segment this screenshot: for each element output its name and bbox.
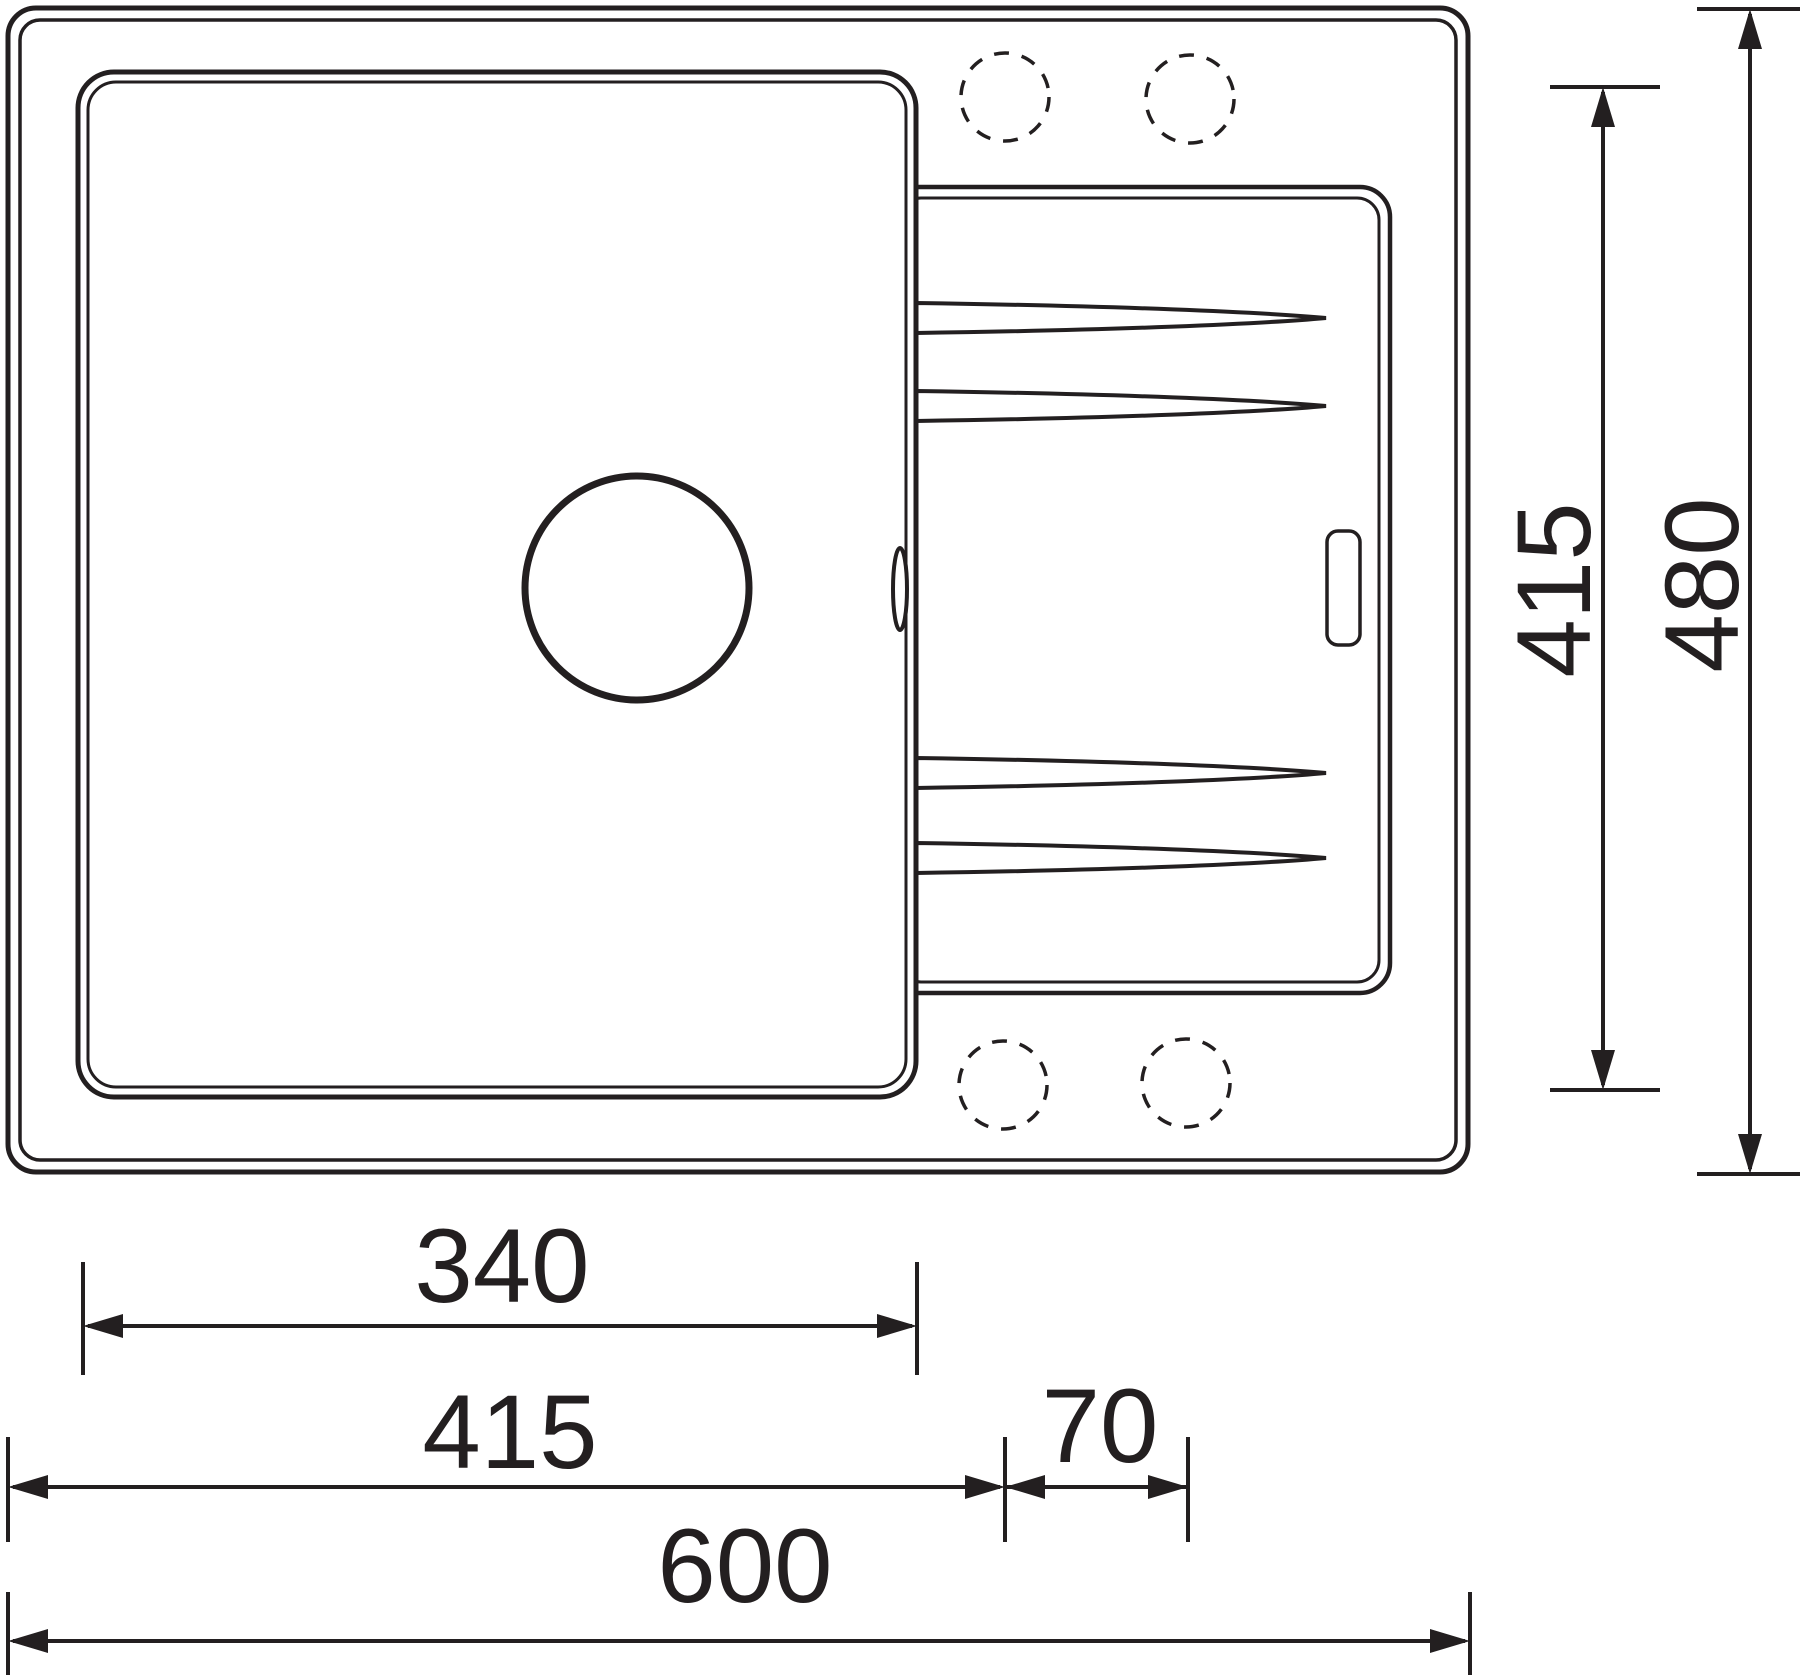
bowl-overflow-notch — [893, 548, 907, 630]
dimension-bowl-depth: 415 — [1496, 87, 1660, 1090]
dim-340-label: 340 — [414, 1208, 589, 1325]
drawing-svg: 340 415 70 600 — [0, 0, 1800, 1675]
drainer-groove-4 — [916, 843, 1326, 873]
dim-600-arrow-right — [1430, 1629, 1470, 1653]
dim-415v-arrow-bottom — [1591, 1050, 1615, 1090]
drainer-groove-2 — [916, 391, 1326, 421]
dim-415h-label: 415 — [422, 1374, 597, 1491]
main-bowl — [78, 72, 916, 1097]
dim-415v-arrow-top — [1591, 87, 1615, 127]
dim-480-arrow-bottom — [1738, 1134, 1762, 1174]
dim-480-arrow-top — [1738, 9, 1762, 49]
drain-hole — [525, 476, 749, 700]
dimension-tap-position: 415 70 — [8, 1368, 1188, 1542]
dim-480-label: 480 — [1644, 497, 1761, 672]
tap-hole-bottom-left — [959, 1041, 1047, 1129]
dim-70-arrow-left — [1005, 1475, 1045, 1499]
bowl-outer-edge — [78, 72, 916, 1097]
dimension-bowl-width: 340 — [83, 1208, 917, 1375]
dim-415h-arrow-right — [965, 1475, 1005, 1499]
overflow-slot — [1327, 531, 1360, 645]
dim-70-label: 70 — [1042, 1368, 1159, 1485]
drainer-groove-1 — [916, 303, 1326, 333]
dim-415v-label: 415 — [1496, 502, 1613, 677]
dim-600-label: 600 — [657, 1508, 832, 1625]
drainer-board — [888, 187, 1390, 993]
tap-hole-top-right — [1146, 55, 1234, 143]
tap-hole-bottom-right — [1142, 1039, 1230, 1127]
dim-600-arrow-left — [8, 1629, 48, 1653]
dimension-overall-depth: 480 — [1644, 9, 1800, 1174]
dim-340-arrow-left — [83, 1314, 123, 1338]
drainer-groove-3 — [916, 758, 1326, 788]
tap-hole-top-left — [961, 53, 1049, 141]
dim-340-arrow-right — [877, 1314, 917, 1338]
dim-415h-arrow-left — [8, 1475, 48, 1499]
tap-holes — [959, 53, 1234, 1129]
dimension-overall-width: 600 — [8, 1508, 1470, 1675]
sink-dimension-drawing: 340 415 70 600 — [0, 0, 1800, 1675]
